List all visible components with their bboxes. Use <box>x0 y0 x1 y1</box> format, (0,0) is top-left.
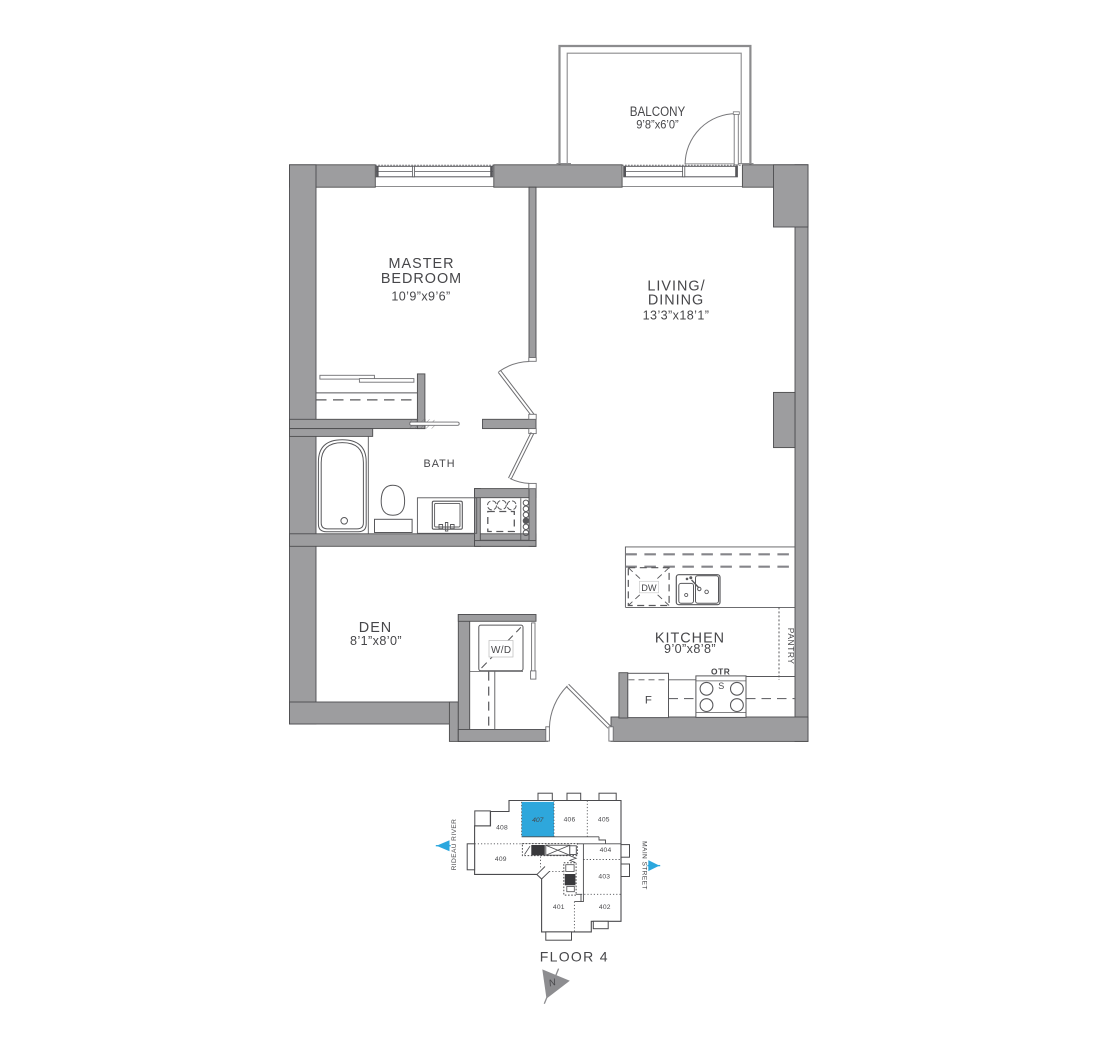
svg-text:DINING: DINING <box>648 293 704 309</box>
svg-text:9’0”x8’8”: 9’0”x8’8” <box>664 642 716 656</box>
svg-text:405: 405 <box>598 817 610 824</box>
svg-text:8’1”x8’0”: 8’1”x8’0” <box>350 634 402 648</box>
svg-text:OTR: OTR <box>711 666 730 676</box>
svg-text:FLOOR 4: FLOOR 4 <box>540 949 609 965</box>
svg-text:W/D: W/D <box>491 645 511 656</box>
svg-text:403: 403 <box>598 873 610 880</box>
svg-text:404: 404 <box>600 847 612 854</box>
svg-text:MAIN STREET: MAIN STREET <box>640 841 647 890</box>
svg-text:PANTRY: PANTRY <box>786 628 796 665</box>
svg-text:F: F <box>645 694 652 706</box>
svg-text:406: 406 <box>564 817 576 824</box>
svg-text:408: 408 <box>496 825 508 832</box>
svg-text:BATH: BATH <box>424 458 456 470</box>
svg-text:MASTER: MASTER <box>389 256 455 272</box>
svg-text:402: 402 <box>599 904 611 911</box>
svg-text:DW: DW <box>641 583 657 593</box>
svg-text:S: S <box>718 681 724 691</box>
svg-text:407: 407 <box>532 817 544 824</box>
svg-text:10’9”x9’6”: 10’9”x9’6” <box>391 290 450 304</box>
svg-text:BEDROOM: BEDROOM <box>381 271 462 287</box>
svg-text:RIDEAU RIVER: RIDEAU RIVER <box>451 819 458 871</box>
svg-text:401: 401 <box>553 904 565 911</box>
svg-text:BALCONY: BALCONY <box>630 104 686 119</box>
svg-text:409: 409 <box>495 856 507 863</box>
svg-text:13’3”x18’1”: 13’3”x18’1” <box>643 309 710 323</box>
svg-text:9’8”x6’0”: 9’8”x6’0” <box>636 118 679 131</box>
